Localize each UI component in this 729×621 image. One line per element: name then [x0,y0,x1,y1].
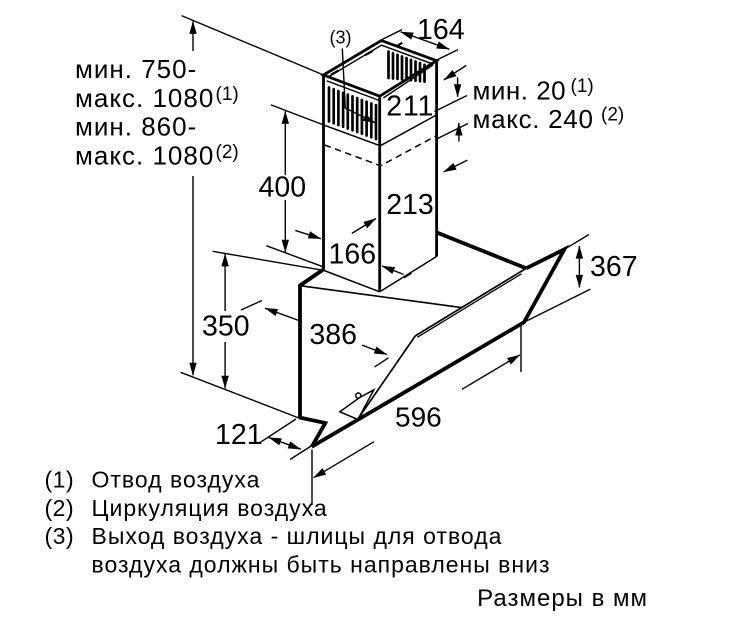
svg-text:386: 386 [309,319,357,351]
svg-text:350: 350 [202,311,250,343]
svg-text:166: 166 [329,239,377,271]
svg-text:Выход воздуха - шлицы для отво: Выход воздуха - шлицы для отвода [92,523,503,549]
svg-text:213: 213 [386,189,434,221]
svg-text:(1): (1) [45,467,75,493]
svg-text:Циркуляция воздуха: Циркуляция воздуха [92,495,328,521]
svg-text:(1): (1) [216,84,239,105]
svg-text:макс. 1080: макс. 1080 [75,83,214,113]
svg-text:(3): (3) [45,523,75,549]
svg-text:121: 121 [215,419,263,451]
svg-text:(2): (2) [45,495,75,521]
svg-text:Размеры в мм: Размеры в мм [477,585,648,612]
svg-text:Отвод воздуха: Отвод воздуха [92,467,261,493]
svg-text:(2): (2) [216,142,239,163]
svg-text:367: 367 [590,251,638,283]
svg-text:164: 164 [417,14,465,46]
svg-text:мин. 750-: мин. 750- [75,54,197,84]
svg-text:макс. 1080: макс. 1080 [75,141,214,171]
svg-text:(1): (1) [571,76,594,97]
svg-text:воздуха должны быть направлены: воздуха должны быть направлены вниз [92,552,551,578]
svg-text:(2): (2) [601,105,624,126]
svg-text:(3): (3) [330,28,352,48]
svg-text:596: 596 [395,401,442,432]
svg-text:211: 211 [386,90,434,122]
svg-text:400: 400 [259,171,307,203]
svg-text:мин. 20: мин. 20 [473,76,567,106]
svg-text:макс. 240: макс. 240 [473,104,594,134]
svg-text:мин. 860-: мин. 860- [75,111,197,141]
